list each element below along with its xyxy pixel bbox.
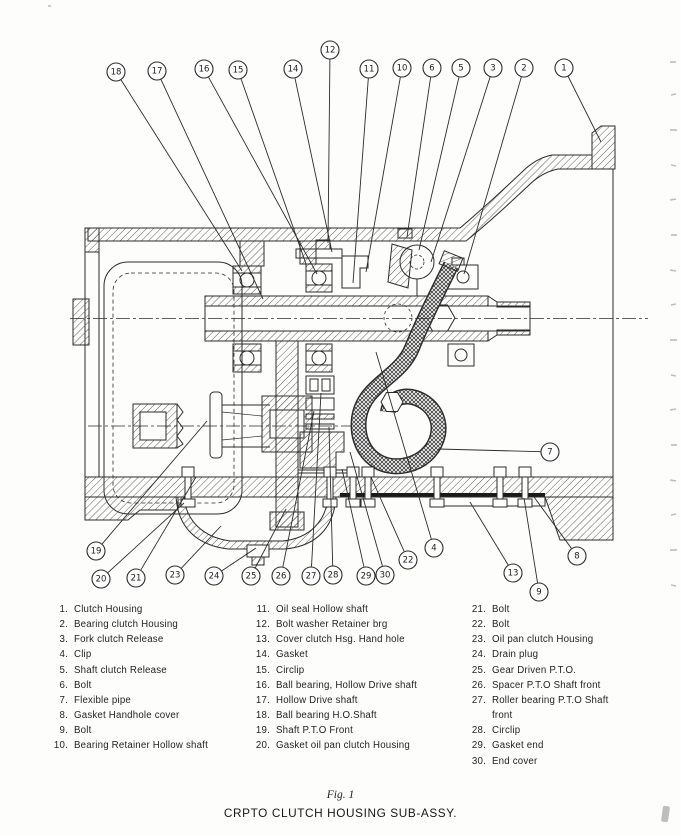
part-label: Bolt [492,602,510,617]
callout-number-17: 17 [152,67,163,77]
callout-number-28: 28 [328,571,339,581]
callout-number-4: 4 [431,544,436,554]
release-fork [388,244,434,296]
parts-list-item: 8.Gasket Handhole cover [44,708,244,723]
part-label: Circlip [276,663,304,678]
leader-line-17 [161,80,263,299]
callout-number-7: 7 [547,448,552,458]
callout-number-1: 1 [561,64,566,74]
part-number: 3. [44,632,68,647]
part-number: 7. [44,693,68,708]
part-label: Clip [74,647,92,662]
assembly-diagram: 1235610111214151617181920212324252627282… [0,0,681,618]
parts-list-item: 24.Drain plug [462,647,638,662]
parts-list-item: 19.Shaft P.T.O Front [246,723,461,738]
parts-list-item: 20.Gasket oil pan clutch Housing [246,738,461,753]
parts-list-item: 6.Bolt [44,678,244,693]
parts-list-item: 25.Gear Driven P.T.O. [462,663,638,678]
part-number: 6. [44,678,68,693]
part-label: Drain plug [492,647,538,662]
part-number: 18. [246,708,270,723]
callout-number-10: 10 [397,64,408,74]
parts-list-item: 10.Bearing Retainer Hollow shaft [44,738,244,753]
leader-line-2 [464,77,521,274]
part-number: 20. [246,738,270,753]
callout-number-11: 11 [364,65,375,75]
part-number: 13. [246,632,270,647]
callout-number-5: 5 [458,64,463,74]
part-number: 21. [462,602,486,617]
callout-number-6: 6 [429,64,434,74]
parts-list-item: 1.Clutch Housing [44,602,244,617]
leader-line-6 [407,77,431,237]
part-number: 5. [44,663,68,678]
callout-number-29: 29 [361,572,372,582]
callout-number-2: 2 [521,64,526,74]
parts-list-item: 17.Hollow Drive shaft [246,693,461,708]
part-number: 10. [44,738,68,753]
parts-list-item: 5.Shaft clutch Release [44,663,244,678]
part-label: Shaft clutch Release [74,663,167,678]
part-label: Gasket end [492,738,544,753]
part-label: Fork clutch Release [74,632,163,647]
pto-front-shaft [133,392,270,458]
part-label: Hollow Drive shaft [276,693,358,708]
manual-page: 1235610111214151617181920212324252627282… [0,0,681,836]
callout-number-27: 27 [306,572,317,582]
part-label: Gasket [276,647,308,662]
parts-list-item: 26.Spacer P.T.O Shaft front [462,678,638,693]
parts-list-item: 22.Bolt [462,617,638,632]
part-number: 14. [246,647,270,662]
part-number: 15. [246,663,270,678]
callout-number-8: 8 [574,552,579,562]
parts-list-item: 4.Clip [44,647,244,662]
part-number: 12. [246,617,270,632]
part-label: Ball bearing, Hollow Drive shaft [276,678,417,693]
part-label: Roller bearing P.T.O Shaft front [492,693,609,723]
part-label: Bolt [74,678,92,693]
part-label: Flexible pipe [74,693,131,708]
leader-line-10 [366,77,400,272]
callout-number-22: 22 [403,556,414,566]
figure-title: CRPTO CLUTCH HOUSING SUB-ASSY. [0,806,681,820]
callout-number-21: 21 [131,574,142,584]
callout-number-19: 19 [91,547,102,557]
part-number: 16. [246,678,270,693]
callout-number-14: 14 [288,65,299,75]
leader-line-12 [328,60,330,244]
part-number: 17. [246,693,270,708]
callout-number-13: 13 [508,569,519,579]
parts-list-item: 23.Oil pan clutch Housing [462,632,638,647]
part-label: Circlip [492,723,520,738]
flexible-pipe [359,251,463,467]
part-label: Gasket oil pan clutch Housing [276,738,410,753]
part-label: Oil seal Hollow shaft [276,602,368,617]
callout-number-12: 12 [325,46,336,56]
part-label: Spacer P.T.O Shaft front [492,678,601,693]
part-label: Ball bearing H.O.Shaft [276,708,377,723]
parts-list-column-2: 11.Oil seal Hollow shaft12.Bolt washer R… [246,602,461,754]
part-number: 22. [462,617,486,632]
part-number: 29. [462,738,486,753]
main-hollow-shaft [205,296,530,341]
part-number: 23. [462,632,486,647]
part-label: End cover [492,754,537,769]
parts-list-item: 18.Ball bearing H.O.Shaft [246,708,461,723]
parts-list-item: 29.Gasket end [462,738,638,753]
part-number: 27. [462,693,486,708]
leader-line-4 [376,352,431,539]
part-number: 26. [462,678,486,693]
parts-list-column-3: 21.Bolt22.Bolt23.Oil pan clutch Housing2… [462,602,638,769]
callout-balloons: 1235610111214151617181920212324252627282… [87,41,586,601]
leader-line-11 [353,79,368,284]
part-label: Oil pan clutch Housing [492,632,593,647]
parts-list-item: 12.Bolt washer Retainer brg [246,617,461,632]
leader-line-5 [419,77,459,250]
part-label: Shaft P.T.O Front [276,723,353,738]
callout-number-3: 3 [490,64,495,74]
part-number: 19. [246,723,270,738]
parts-list-item: 11.Oil seal Hollow shaft [246,602,461,617]
callout-number-15: 15 [233,66,244,76]
callout-number-18: 18 [111,68,122,78]
banjo-bolt [381,393,403,412]
parts-list-column-1: 1.Clutch Housing2.Bearing clutch Housing… [44,602,244,754]
leader-line-14 [295,78,332,252]
part-label: Cover clutch Hsg. Hand hole [276,632,405,647]
drain-plug [247,545,269,557]
pto-bearing-cluster [298,376,348,473]
figure-caption: Fig. 1 [0,789,681,801]
callout-number-26: 26 [276,572,287,582]
leader-line-18 [121,80,242,271]
leader-line-7 [438,449,541,452]
leader-line-13 [470,502,508,565]
part-label: Bearing Retainer Hollow shaft [74,738,208,753]
part-number: 11. [246,602,270,617]
part-number: 28. [462,723,486,738]
part-number: 4. [44,647,68,662]
part-label: Bolt washer Retainer brg [276,617,387,632]
part-number: 1. [44,602,68,617]
callout-number-24: 24 [209,572,220,582]
part-label: Gasket Handhole cover [74,708,179,723]
parts-list-item: 9.Bolt [44,723,244,738]
leader-line-1 [568,77,601,143]
part-number: 30. [462,754,486,769]
part-label: Bearing clutch Housing [74,617,178,632]
part-number: 8. [44,708,68,723]
part-label: Gear Driven P.T.O. [492,663,576,678]
part-number: 24. [462,647,486,662]
callout-number-30: 30 [380,571,391,581]
part-number: 9. [44,723,68,738]
callout-number-25: 25 [246,572,257,582]
parts-list-item: 3.Fork clutch Release [44,632,244,647]
callout-number-20: 20 [96,575,107,585]
parts-list-item: 27.Roller bearing P.T.O Shaft front [462,693,638,723]
parts-list-item: 7.Flexible pipe [44,693,244,708]
leader-line-9 [524,498,538,583]
part-label: Clutch Housing [74,602,143,617]
parts-list-item: 2.Bearing clutch Housing [44,617,244,632]
parts-list-item: 21.Bolt [462,602,638,617]
parts-list-item: 16.Ball bearing, Hollow Drive shaft [246,678,461,693]
part-number: 2. [44,617,68,632]
callout-number-23: 23 [170,571,181,581]
part-label: Bolt [492,617,510,632]
parts-list-item: 13.Cover clutch Hsg. Hand hole [246,632,461,647]
callout-number-16: 16 [199,65,210,75]
parts-list-item: 30.End cover [462,754,638,769]
part-number: 25. [462,663,486,678]
callout-number-9: 9 [536,588,541,598]
part-label: Bolt [74,723,92,738]
parts-list-item: 15.Circlip [246,663,461,678]
parts-list-item: 14.Gasket [246,647,461,662]
parts-list-item: 28.Circlip [462,723,638,738]
